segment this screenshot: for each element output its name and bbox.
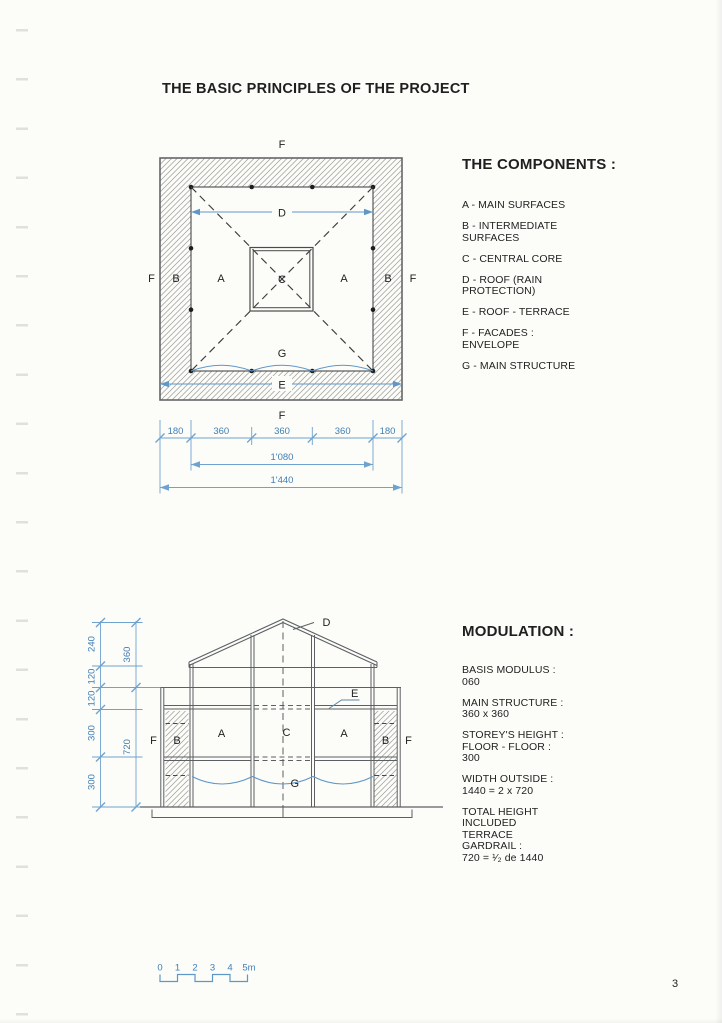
section-dim-300-lower: 300 (87, 774, 98, 790)
section-dim-120-upper: 120 (87, 669, 98, 685)
section-hatch-right (375, 711, 398, 807)
section-label-a-left: A (218, 728, 226, 740)
plan-label-d: D (278, 208, 286, 220)
drawings-canvas: D G E F F F F B B A A C (0, 0, 722, 1023)
plan-dim-180-right: 180 (380, 426, 396, 437)
plan-label-a-left: A (217, 273, 225, 285)
plan-dim-360-3: 360 (335, 426, 351, 437)
plan-label-b-left: B (172, 273, 179, 285)
plan-diagram: D G E F F F F B B A A C (148, 139, 417, 422)
section-label-d: D (323, 617, 331, 629)
section-label-g: G (291, 778, 300, 790)
section-dim-120-lower: 120 (87, 691, 98, 707)
plan-dim-1440: 1'440 (271, 475, 294, 486)
section-label-f-right: F (405, 735, 412, 747)
section-label-c: C (283, 727, 291, 739)
plan-dim-360-1: 360 (213, 426, 229, 437)
plan-label-f-top: F (279, 139, 286, 151)
section-e-leader (329, 700, 360, 709)
scale-tick-2: 2 (192, 963, 197, 974)
section-dimension-labels: 240 120 120 300 300 360 720 (87, 636, 134, 790)
scale-tick-0: 0 (157, 963, 162, 974)
section-label-a-right: A (340, 728, 348, 740)
section-label-f-left: F (150, 735, 157, 747)
plan-dimension-labels: 180 360 360 360 180 1'080 1'440 (168, 426, 396, 486)
plan-label-f-bottom: F (279, 410, 286, 422)
section-label-e: E (351, 688, 358, 700)
plan-dim-1080: 1'080 (271, 452, 294, 463)
plan-label-g: G (278, 348, 287, 360)
plan-dim-180-left: 180 (168, 426, 184, 437)
plan-label-f-left: F (148, 273, 155, 285)
section-dim-240: 240 (87, 636, 98, 652)
plan-label-e: E (278, 380, 285, 392)
plan-label-b-right: B (384, 273, 391, 285)
section-dim-720: 720 (122, 739, 133, 755)
section-hatch-left (166, 711, 189, 807)
section-diagram: D E F F B B A A C G (140, 617, 443, 818)
section-label-b-left: B (173, 735, 180, 747)
section-dim-300-upper: 300 (87, 725, 98, 741)
scale-bar-crenellation (160, 975, 248, 982)
section-label-b-right: B (382, 735, 389, 747)
scanned-document-page: { "page": { "title": "THE BASIC PRINCIPL… (0, 0, 722, 1023)
plan-label-c: C (278, 274, 286, 286)
scale-tick-5m: 5m (242, 963, 255, 974)
scale-tick-1: 1 (175, 963, 180, 974)
section-dim-360: 360 (122, 647, 133, 663)
plan-label-f-right: F (410, 273, 417, 285)
plan-dim-360-2: 360 (274, 426, 290, 437)
scale-tick-3: 3 (210, 963, 215, 974)
scale-tick-4: 4 (227, 963, 232, 974)
scale-bar: 0 1 2 3 4 5m (157, 963, 255, 982)
plan-label-a-right: A (340, 273, 348, 285)
